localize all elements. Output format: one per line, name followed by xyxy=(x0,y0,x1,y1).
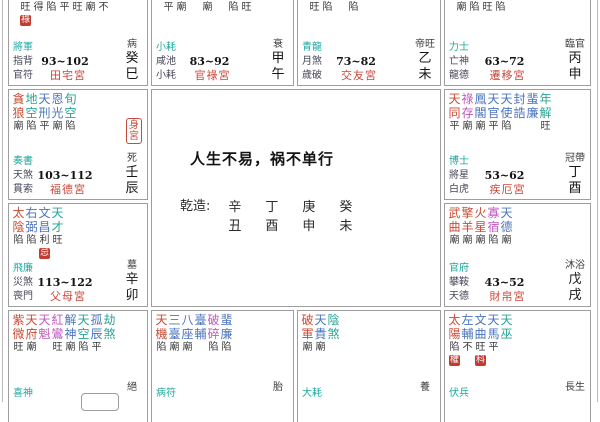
star-brightness: 廟 xyxy=(183,341,193,354)
stem-char: 癸 xyxy=(120,51,144,67)
star-brightness: 陷 xyxy=(470,1,480,14)
star-name-char: 鳳 xyxy=(474,92,486,106)
star-name-char: 臺 xyxy=(168,327,180,341)
star-name-char: 天 xyxy=(314,313,326,327)
star-brightness: 陷 xyxy=(323,1,333,14)
pillar-stem: 癸 xyxy=(327,198,364,217)
palace-cell-xu: 武曲廟擎羊廟火星廟寡宿陷天德廟官府攀鞍天德43~52財帛宮沐浴戊戌 xyxy=(444,203,591,307)
star-name-char: 使 xyxy=(500,106,512,120)
body-palace-char: 宮 xyxy=(129,131,139,142)
longevity-stage: 長生 xyxy=(563,381,587,394)
star-name-char: 廉 xyxy=(526,106,538,120)
star-brightness: 旺 xyxy=(73,1,83,14)
god-label: 喜神 xyxy=(13,387,33,401)
gods-labels: 伏兵 xyxy=(449,387,469,401)
transform-badge: 忌 xyxy=(39,248,50,259)
star-brightness: 廟 xyxy=(203,1,213,14)
pillar-stem: 庚 xyxy=(290,198,327,217)
brightness-slot: 平 xyxy=(162,1,175,14)
god-label: 博士 xyxy=(449,155,469,169)
star-brightness: 旺 xyxy=(242,1,252,14)
star-column: 火星廟 xyxy=(474,206,487,247)
star-name-char: 閣 xyxy=(474,106,486,120)
star-name-char: 同 xyxy=(448,106,460,120)
star-name-char: 軍 xyxy=(301,327,313,341)
star-column: 天空陷 xyxy=(77,313,90,354)
star-brightness: 廟 xyxy=(450,234,460,247)
stage-stembranch: 衰甲午 xyxy=(266,38,290,83)
star-column: 擎羊廟 xyxy=(461,206,474,247)
star-name-char: 鸞 xyxy=(51,327,63,341)
star-name-char: 武 xyxy=(448,206,460,220)
star-column: 天貴廟 xyxy=(314,313,327,354)
star-brightness: 利 xyxy=(40,234,50,247)
stem-char: 乙 xyxy=(413,51,437,67)
star-column: 陰煞 xyxy=(327,313,340,354)
star-brightness: 旺 xyxy=(541,120,551,133)
pillar-hour: 癸 未 xyxy=(327,198,364,236)
star-column: 孤辰平 xyxy=(90,313,103,354)
star-brightness: 不 xyxy=(463,341,473,354)
palace-name: 官祿宮 xyxy=(152,67,273,83)
star-column: 天才旺 xyxy=(51,206,64,247)
longevity-stage: 帝旺 xyxy=(413,38,437,51)
branch-char: 酉 xyxy=(563,181,587,197)
star-name-char: 曲 xyxy=(448,220,460,234)
ziwei-chart-board: 旺祿得陷平旺廟不將軍指背官符93~102田宅宮病癸巳平廟廟陷旺小耗咸池小耗83~… xyxy=(0,0,600,400)
star-name-char: 太 xyxy=(448,313,460,327)
brightness-slot: 廟 xyxy=(201,1,214,14)
star-name-char: 恩 xyxy=(51,92,63,106)
stage-stembranch: 帝旺乙未 xyxy=(413,38,437,83)
star-name-char: 天 xyxy=(500,206,512,220)
star-list: 破軍廟天貴廟陰煞 xyxy=(301,313,340,354)
stage-stembranch: 養 xyxy=(413,381,437,394)
star-column: 天馬平 xyxy=(487,313,500,354)
star-brightness: 平 xyxy=(60,1,70,14)
star-name-char: 碎 xyxy=(207,327,219,341)
star-column: 武曲廟 xyxy=(448,206,461,247)
pillar-branch: 丑 xyxy=(216,217,253,236)
stage-stembranch: 長生 xyxy=(563,381,587,394)
palace-name: 福德宮 xyxy=(9,181,127,197)
god-label: 將軍 xyxy=(13,41,33,55)
stem-char: 戊 xyxy=(563,272,587,288)
gods-labels: 病符 xyxy=(156,387,176,401)
brightness-slot: 廟 xyxy=(455,1,468,14)
brightness-slot: 旺祿 xyxy=(19,1,32,26)
star-name-char: 紅 xyxy=(51,313,63,327)
stem-char: 甲 xyxy=(266,51,290,67)
brightness-row: 旺陷陷 xyxy=(308,1,360,14)
star-name-char: 破 xyxy=(207,313,219,327)
star-name-char: 祿 xyxy=(461,92,473,106)
star-brightness: 廟 xyxy=(457,1,467,14)
star-name-char: 天 xyxy=(38,92,50,106)
star-name-char: 紫 xyxy=(12,313,24,327)
longevity-stage: 絕 xyxy=(120,381,144,394)
star-name-char: 蜚 xyxy=(220,313,232,327)
brightness-slot: 平 xyxy=(58,1,71,26)
star-name-char: 天 xyxy=(500,313,512,327)
star-name-char: 昌 xyxy=(38,220,50,234)
star-brightness: 廟 xyxy=(170,341,180,354)
longevity-stage: 養 xyxy=(413,381,437,394)
star-brightness: 陷 xyxy=(14,234,24,247)
brightness-slot: 旺 xyxy=(308,1,321,14)
star-name-char: 機 xyxy=(155,327,167,341)
star-name-char: 寡 xyxy=(487,206,499,220)
star-brightness: 平 xyxy=(450,120,460,133)
gods-labels: 大耗 xyxy=(302,387,322,401)
star-brightness: 陷 xyxy=(450,341,460,354)
longevity-stage: 臨官 xyxy=(563,38,587,51)
star-list: 紫微旺天府廟天魁紅鸞旺解神廟天空陷孤辰平劫煞 xyxy=(12,313,116,354)
star-name-char: 空 xyxy=(77,327,89,341)
star-name-char: 羊 xyxy=(461,220,473,234)
star-column: 太陽陷權 xyxy=(448,313,461,366)
brightness-slot: 廟 xyxy=(175,1,188,14)
star-name-char: 旬 xyxy=(64,92,76,106)
longevity-stage: 死 xyxy=(120,152,144,165)
stem-char: 辛 xyxy=(120,272,144,288)
star-name-char: 天 xyxy=(51,206,63,220)
star-brightness: 旺 xyxy=(476,341,486,354)
star-name-char: 解 xyxy=(539,106,551,120)
star-brightness: 廟 xyxy=(177,1,187,14)
longevity-stage: 冠帶 xyxy=(563,152,587,165)
star-column: 紫微旺 xyxy=(12,313,25,354)
star-column: 左輔不 xyxy=(461,313,474,354)
star-name-char: 左 xyxy=(461,313,473,327)
star-column: 天巫 xyxy=(500,313,513,354)
star-brightness: 平 xyxy=(92,341,102,354)
stem-char: 丙 xyxy=(563,51,587,67)
star-brightness: 陷 xyxy=(47,1,57,14)
star-column: 紅鸞旺 xyxy=(51,313,64,354)
stage-stembranch: 胎 xyxy=(266,381,290,394)
star-brightness: 廟 xyxy=(66,341,76,354)
pillar-branch: 申 xyxy=(290,217,327,236)
star-name-char: 火 xyxy=(474,206,486,220)
star-name-char: 空 xyxy=(25,106,37,120)
chart-title: 人生不易，祸不单行 xyxy=(190,148,334,169)
palace-name: 交友宮 xyxy=(298,67,420,83)
body-palace-char: 身 xyxy=(129,120,139,131)
transform-badge: 權 xyxy=(449,355,460,366)
branch-char: 巳 xyxy=(120,67,144,83)
star-column: 天使陷 xyxy=(500,92,513,133)
stage-stembranch: 臨官丙申 xyxy=(563,38,587,83)
star-list: 太陰陷右弼陷文昌利忌天才旺 xyxy=(12,206,64,259)
star-name-char: 才 xyxy=(51,220,63,234)
stage-stembranch: 冠帶丁酉 xyxy=(563,152,587,197)
star-name-char: 輔 xyxy=(194,327,206,341)
star-list: 武曲廟擎羊廟火星廟寡宿陷天德廟 xyxy=(448,206,513,247)
pillar-month: 丁 酉 xyxy=(253,198,290,236)
pillar-branch: 未 xyxy=(327,217,364,236)
body-palace-badge: 身宮 xyxy=(126,118,142,144)
star-name-char: 陽 xyxy=(448,327,460,341)
star-list: 天同平祿存廟鳳閣廟天官平天使陷封誥蜚廉年解旺 xyxy=(448,92,552,133)
palace-cell-zi: 破軍廟天貴廟陰煞大耗養 xyxy=(297,310,441,422)
stem-char: 壬 xyxy=(120,165,144,181)
pillar-stem: 辛 xyxy=(216,198,253,217)
star-brightness: 平 xyxy=(489,341,499,354)
star-column: 蜚廉陷 xyxy=(220,313,233,354)
god-label: 飛廉 xyxy=(13,262,33,276)
branch-char: 未 xyxy=(413,67,437,83)
longevity-stage: 衰 xyxy=(266,38,290,51)
star-column: 地空陷 xyxy=(25,92,38,133)
star-brightness: 旺 xyxy=(21,1,31,14)
palace-cell-wu: 平廟廟陷旺小耗咸池小耗83~92官祿宮衰甲午 xyxy=(151,0,294,86)
palace-cell-you: 天同平祿存廟鳳閣廟天官平天使陷封誥蜚廉年解旺博士將星白虎53~62疾厄宮冠帶丁酉 xyxy=(444,89,591,200)
star-name-char: 天 xyxy=(448,92,460,106)
brightness-slot: 旺 xyxy=(481,1,494,14)
palace-cell-si: 旺祿得陷平旺廟不將軍指背官符93~102田宅宮病癸巳 xyxy=(8,0,148,86)
brightness-slot: 得 xyxy=(32,1,45,26)
star-column: 年解旺 xyxy=(539,92,552,133)
star-name-char: 三 xyxy=(168,313,180,327)
longevity-stage: 墓 xyxy=(120,259,144,272)
star-name-char: 天 xyxy=(487,92,499,106)
brightness-slot: 旺 xyxy=(71,1,84,26)
palace-cell-shen: 廟陷旺陷力士亡神龍德63~72遷移宮臨官丙申 xyxy=(444,0,591,86)
longevity-stage: 胎 xyxy=(266,381,290,394)
star-column: 臺輔 xyxy=(194,313,207,354)
star-brightness: 廟 xyxy=(27,341,37,354)
star-name-char: 煞 xyxy=(327,327,339,341)
star-name-char: 年 xyxy=(539,92,551,106)
star-brightness: 平 xyxy=(489,120,499,133)
star-brightness: 旺 xyxy=(53,341,63,354)
star-brightness: 陷 xyxy=(229,1,239,14)
star-name-char: 右 xyxy=(25,206,37,220)
star-brightness: 陷 xyxy=(222,341,232,354)
star-name-char: 曲 xyxy=(474,327,486,341)
star-name-char: 破 xyxy=(301,313,313,327)
star-brightness: 廟 xyxy=(476,234,486,247)
star-name-char: 狼 xyxy=(12,106,24,120)
star-name-char: 天 xyxy=(500,92,512,106)
star-brightness: 廟 xyxy=(476,120,486,133)
god-label: 小耗 xyxy=(156,41,176,55)
star-brightness: 陷 xyxy=(157,341,167,354)
star-column: 文昌利忌 xyxy=(38,206,51,259)
star-name-char: 擎 xyxy=(461,206,473,220)
four-pillars: 乾造: 辛 丑 丁 酉 庚 申 癸 未 xyxy=(180,198,364,236)
star-brightness: 陷 xyxy=(27,234,37,247)
palace-cell-yin: 紫微旺天府廟天魁紅鸞旺解神廟天空陷孤辰平劫煞喜神絕 xyxy=(8,310,148,422)
brightness-slot: 陷 xyxy=(468,1,481,14)
pillar-stem: 丁 xyxy=(253,198,290,217)
god-label: 官府 xyxy=(449,262,469,276)
palace-name: 財帛宮 xyxy=(445,288,570,304)
god-label: 大耗 xyxy=(302,387,322,401)
branch-char: 申 xyxy=(563,67,587,83)
star-name-char: 辰 xyxy=(90,327,102,341)
star-column: 三臺廟 xyxy=(168,313,181,354)
star-name-char: 微 xyxy=(12,327,24,341)
star-brightness: 陷 xyxy=(502,120,512,133)
star-brightness: 陷 xyxy=(489,234,499,247)
star-name-char: 封 xyxy=(513,92,525,106)
star-column: 封誥 xyxy=(513,92,526,133)
star-name-char: 馬 xyxy=(487,327,499,341)
star-brightness: 廟 xyxy=(463,234,473,247)
star-brightness: 廟 xyxy=(316,341,326,354)
star-name-char: 魁 xyxy=(38,327,50,341)
star-column: 鳳閣廟 xyxy=(474,92,487,133)
palace-name: 田宅宮 xyxy=(9,67,127,83)
star-brightness: 陷 xyxy=(496,1,506,14)
brightness-slot: 陷 xyxy=(347,1,360,14)
star-name-char: 地 xyxy=(25,92,37,106)
star-name-char: 煞 xyxy=(103,327,115,341)
star-column: 寡宿陷 xyxy=(487,206,500,247)
star-name-char: 文 xyxy=(474,313,486,327)
star-name-char: 官 xyxy=(487,106,499,120)
center-panel: 人生不易，祸不单行 乾造: 辛 丑 丁 酉 庚 申 癸 未 xyxy=(151,89,441,307)
star-column: 天府廟 xyxy=(25,313,38,354)
brightness-slot xyxy=(214,1,227,14)
star-column: 蜚廉 xyxy=(526,92,539,133)
star-name-char: 巫 xyxy=(500,327,512,341)
stage-stembranch: 死壬辰 xyxy=(120,152,144,197)
star-name-char: 貪 xyxy=(12,92,24,106)
star-name-char: 孤 xyxy=(90,313,102,327)
brightness-row: 廟陷旺陷 xyxy=(455,1,507,14)
brightness-row: 旺祿得陷平旺廟不 xyxy=(19,1,110,26)
branch-char: 卯 xyxy=(120,288,144,304)
pillars-label: 乾造: xyxy=(180,198,210,236)
star-brightness: 平 xyxy=(40,120,50,133)
star-name-char: 蜚 xyxy=(526,92,538,106)
star-column: 解神廟 xyxy=(64,313,77,354)
star-name-char: 陰 xyxy=(327,313,339,327)
star-brightness: 廟 xyxy=(14,120,24,133)
star-name-char: 陰 xyxy=(12,220,24,234)
brightness-slot: 陷 xyxy=(321,1,334,14)
star-column: 太陰陷 xyxy=(12,206,25,247)
palace-name: 遷移宮 xyxy=(445,67,570,83)
star-name-char: 貴 xyxy=(314,327,326,341)
gods-labels: 喜神 xyxy=(13,387,33,401)
star-column: 貪狼廟 xyxy=(12,92,25,133)
star-brightness: 陷 xyxy=(209,341,219,354)
branch-char: 戌 xyxy=(563,288,587,304)
star-name-char: 空 xyxy=(64,106,76,120)
brightness-slot: 陷 xyxy=(227,1,240,14)
star-column: 破碎陷 xyxy=(207,313,220,354)
brightness-slot: 廟 xyxy=(84,1,97,26)
star-brightness: 廟 xyxy=(303,341,313,354)
star-brightness: 平 xyxy=(164,1,174,14)
star-name-char: 存 xyxy=(461,106,473,120)
stage-stembranch: 沐浴戊戌 xyxy=(563,259,587,304)
star-name-char: 星 xyxy=(474,220,486,234)
god-label: 病符 xyxy=(156,387,176,401)
star-name-char: 天 xyxy=(25,313,37,327)
star-list: 貪狼廟地空陷天刑平恩光廟旬空陷 xyxy=(12,92,77,133)
star-column: 天官平 xyxy=(487,92,500,133)
star-name-char: 天 xyxy=(155,313,167,327)
palace-cell-mao: 太陰陷右弼陷文昌利忌天才旺飛廉災煞喪門113~122父母宮墓辛卯 xyxy=(8,203,148,307)
star-name-char: 臺 xyxy=(194,313,206,327)
star-column: 天同平 xyxy=(448,92,461,133)
transform-badge: 祿 xyxy=(20,15,31,26)
pillar-branch: 酉 xyxy=(253,217,290,236)
star-name-char: 刑 xyxy=(38,106,50,120)
brightness-slot: 陷 xyxy=(494,1,507,14)
god-label: 奏書 xyxy=(13,155,33,169)
star-column: 天刑平 xyxy=(38,92,51,133)
star-brightness: 廟 xyxy=(463,120,473,133)
star-column: 天魁 xyxy=(38,313,51,354)
transform-badge: 科 xyxy=(475,355,486,366)
star-brightness: 陷 xyxy=(349,1,359,14)
star-name-char: 座 xyxy=(181,327,193,341)
star-list: 太陽陷權左輔不文曲旺科天馬平天巫 xyxy=(448,313,513,366)
star-brightness: 廟 xyxy=(502,234,512,247)
star-brightness: 旺 xyxy=(483,1,493,14)
god-label: 伏兵 xyxy=(449,387,469,401)
stem-char: 丁 xyxy=(563,165,587,181)
star-name-char: 解 xyxy=(64,313,76,327)
star-column: 劫煞 xyxy=(103,313,116,354)
star-name-char: 劫 xyxy=(103,313,115,327)
god-label: 力士 xyxy=(449,41,469,55)
star-brightness: 陷 xyxy=(66,120,76,133)
stage-stembranch: 病癸巳 xyxy=(120,38,144,83)
brightness-slot: 旺 xyxy=(240,1,253,14)
palace-name: 父母宮 xyxy=(9,288,127,304)
stage-stembranch: 墓辛卯 xyxy=(120,259,144,304)
pillar-year: 辛 丑 xyxy=(216,198,253,236)
star-name-char: 神 xyxy=(64,327,76,341)
branch-char: 辰 xyxy=(120,181,144,197)
stage-stembranch: 絕 xyxy=(120,381,144,394)
star-brightness: 不 xyxy=(99,1,109,14)
star-column: 天機陷 xyxy=(155,313,168,354)
star-brightness: 廟 xyxy=(86,1,96,14)
brightness-slot xyxy=(334,1,347,14)
star-column: 文曲旺科 xyxy=(474,313,487,366)
star-column: 恩光廟 xyxy=(51,92,64,133)
star-brightness: 旺 xyxy=(310,1,320,14)
star-brightness: 陷 xyxy=(27,120,37,133)
star-name-char: 八 xyxy=(181,313,193,327)
palace-cell-chen: 貪狼廟地空陷天刑平恩光廟旬空陷奏書天煞貫索103~112福德宮死壬辰身宮 xyxy=(8,89,148,200)
star-name-char: 德 xyxy=(500,220,512,234)
star-brightness: 旺 xyxy=(14,341,24,354)
star-name-char: 天 xyxy=(487,313,499,327)
palace-name: 疾厄宮 xyxy=(445,181,570,197)
star-brightness: 廟 xyxy=(53,120,63,133)
palace-cell-wei: 旺陷陷青龍月煞歲破73~82交友宮帝旺乙未 xyxy=(297,0,441,86)
star-column: 祿存廟 xyxy=(461,92,474,133)
star-column: 破軍廟 xyxy=(301,313,314,354)
star-name-char: 誥 xyxy=(513,106,525,120)
brightness-slot: 陷 xyxy=(45,1,58,26)
star-name-char: 輔 xyxy=(461,327,473,341)
star-column: 右弼陷 xyxy=(25,206,38,247)
star-name-char: 太 xyxy=(12,206,24,220)
star-name-char: 光 xyxy=(51,106,63,120)
star-name-char: 宿 xyxy=(487,220,499,234)
longevity-stage: 沐浴 xyxy=(563,259,587,272)
